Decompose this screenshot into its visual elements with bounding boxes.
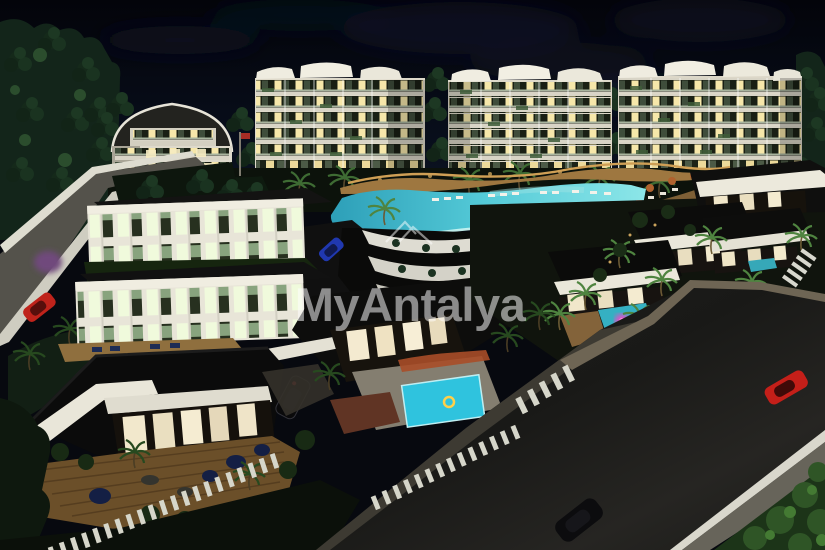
svg-text:MyAntalya: MyAntalya	[295, 278, 527, 331]
